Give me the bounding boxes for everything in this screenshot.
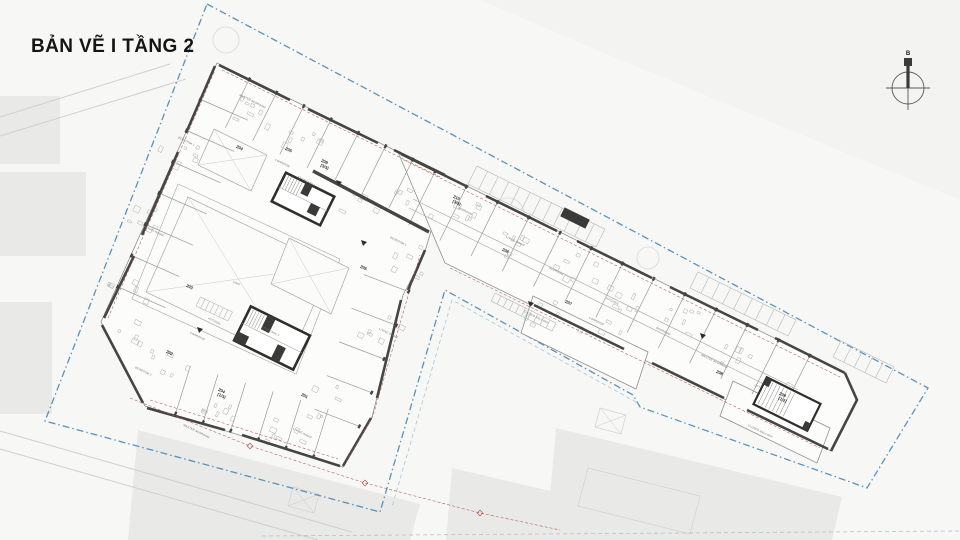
parking-stall-line	[833, 341, 841, 357]
parking-stall-line	[777, 315, 785, 331]
neighbor-lot	[0, 172, 86, 256]
tree-canopy	[213, 27, 239, 53]
furniture-item	[137, 221, 143, 226]
neighbor-lot	[0, 96, 60, 164]
mid-wing-shaft	[560, 207, 590, 228]
parking-stall-line	[585, 224, 594, 242]
parking-stall-line	[500, 182, 509, 200]
north-letter: B	[906, 51, 911, 57]
parking-stall-line	[844, 346, 852, 362]
parking-stall-line	[766, 309, 774, 325]
parking-stall-line	[701, 277, 709, 293]
parking-stall-line	[854, 351, 862, 367]
parking-stall-line	[875, 362, 883, 378]
parking-stall-line	[596, 229, 605, 247]
parking-stall-line	[479, 171, 488, 189]
parcel-line	[0, 64, 170, 117]
tree-canopy	[637, 247, 659, 269]
parking-stall-line	[723, 288, 731, 304]
parking-stall-line	[489, 177, 498, 195]
site-plan-canvas: 204205209(3/3)210(3/3)206207208209(1/2)2…	[0, 0, 960, 540]
north-needle	[906, 64, 909, 88]
parking-stall-line	[543, 203, 552, 221]
floor-plan-page: 204205209(3/3)210(3/3)206207208209(1/2)2…	[0, 0, 960, 540]
neighbor-building	[128, 430, 420, 540]
furniture-item	[419, 272, 423, 276]
parking-stall-line	[491, 293, 495, 301]
parking-stall-line	[865, 356, 873, 372]
parking-rail	[841, 341, 894, 367]
parking-stall-line	[509, 302, 513, 310]
parking-stall-line	[712, 283, 720, 299]
parking-stall-line	[690, 272, 698, 288]
parking-stall-line	[755, 304, 763, 320]
parking-stall-line	[515, 305, 519, 313]
parking-stall-line	[788, 320, 796, 336]
parking-stall-line	[521, 192, 530, 210]
parking-stall-line	[553, 208, 562, 226]
parking-stall-line	[532, 198, 541, 216]
paper-shade	[480, 0, 960, 200]
furniture-item	[133, 205, 141, 213]
parking-stall-line	[744, 299, 752, 315]
parking-stall-line	[497, 296, 501, 304]
parking-stall-line	[503, 299, 507, 307]
parking-stall-line	[734, 293, 742, 309]
north-needle-cap	[904, 58, 912, 66]
furniture-item	[158, 146, 164, 153]
parking-stall-line	[511, 187, 520, 205]
furniture-item	[127, 220, 132, 224]
parking-stall-line	[886, 367, 894, 383]
parking-stall-line	[468, 166, 477, 184]
page-title: BẢN VẼ I TẦNG 2	[31, 36, 194, 58]
neighbor-lot	[0, 302, 52, 414]
